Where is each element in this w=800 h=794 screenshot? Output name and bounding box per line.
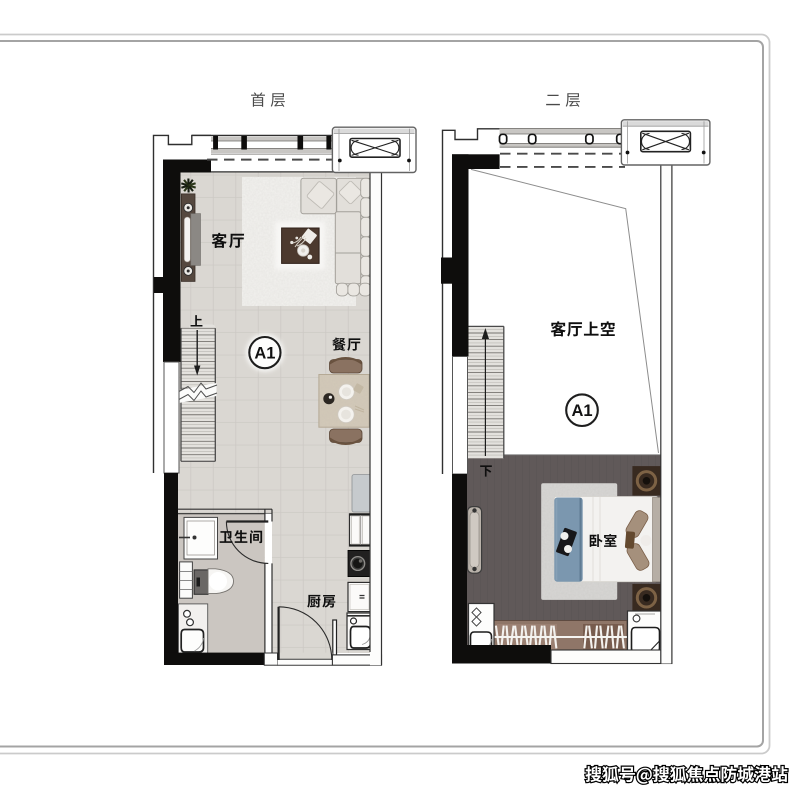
svg-text:A1: A1 bbox=[254, 344, 275, 362]
svg-text:A1: A1 bbox=[571, 402, 592, 420]
